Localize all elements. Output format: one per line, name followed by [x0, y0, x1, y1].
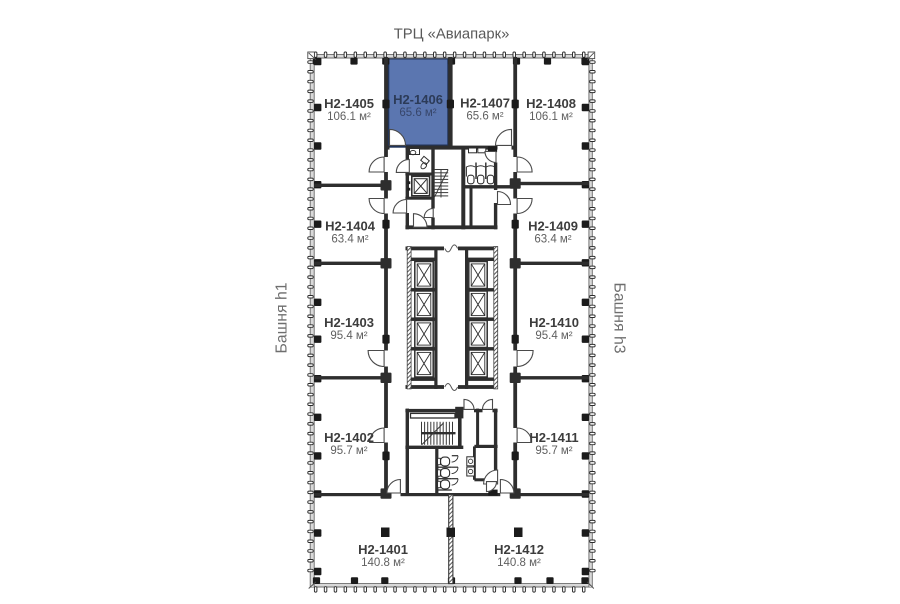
svg-text:140.8 м²: 140.8 м²	[497, 557, 541, 569]
svg-text:H2-1408: H2-1408	[526, 96, 576, 111]
svg-text:H2-1401: H2-1401	[358, 542, 408, 557]
svg-text:H2-1402: H2-1402	[324, 430, 374, 445]
svg-text:95.7 м²: 95.7 м²	[535, 445, 572, 457]
svg-text:ТРЦ «Авиапарк»: ТРЦ «Авиапарк»	[394, 27, 510, 43]
svg-text:95.4 м²: 95.4 м²	[535, 330, 572, 342]
svg-text:H2-1412: H2-1412	[494, 542, 544, 557]
svg-text:106.1 м²: 106.1 м²	[529, 111, 573, 123]
svg-text:95.4 м²: 95.4 м²	[330, 330, 367, 342]
svg-text:H2-1409: H2-1409	[528, 219, 578, 234]
svg-text:H2-1407: H2-1407	[460, 96, 510, 111]
svg-text:Башня h3: Башня h3	[611, 282, 628, 353]
svg-text:H2-1406: H2-1406	[393, 92, 443, 107]
svg-text:H2-1404: H2-1404	[325, 219, 376, 234]
svg-text:H2-1410: H2-1410	[529, 315, 579, 330]
svg-text:95.7 м²: 95.7 м²	[330, 445, 367, 457]
svg-text:65.6 м²: 65.6 м²	[399, 107, 436, 119]
svg-text:Башня h1: Башня h1	[274, 282, 291, 353]
svg-text:65.6 м²: 65.6 м²	[466, 110, 503, 122]
svg-text:140.8 м²: 140.8 м²	[361, 557, 405, 569]
svg-text:H2-1405: H2-1405	[324, 96, 374, 111]
svg-text:63.4 м²: 63.4 м²	[534, 233, 571, 245]
svg-text:H2-1403: H2-1403	[324, 315, 374, 330]
svg-text:H2-1411: H2-1411	[529, 430, 578, 445]
svg-text:63.4 м²: 63.4 м²	[331, 233, 368, 245]
svg-text:106.1 м²: 106.1 м²	[327, 111, 371, 123]
